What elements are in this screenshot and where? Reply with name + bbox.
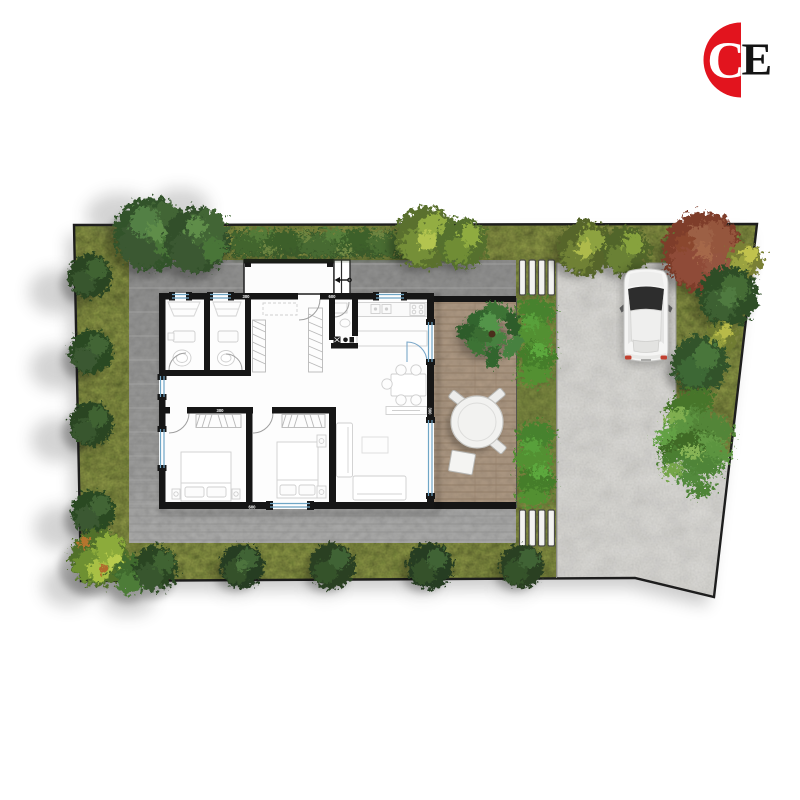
svg-text:600: 600 [249, 505, 257, 510]
svg-text:600: 600 [329, 294, 337, 299]
svg-text:C: C [707, 33, 745, 90]
svg-text:300: 300 [428, 408, 433, 416]
svg-text:300: 300 [217, 408, 225, 413]
svg-text:E: E [742, 34, 773, 85]
svg-text:300: 300 [243, 294, 251, 299]
